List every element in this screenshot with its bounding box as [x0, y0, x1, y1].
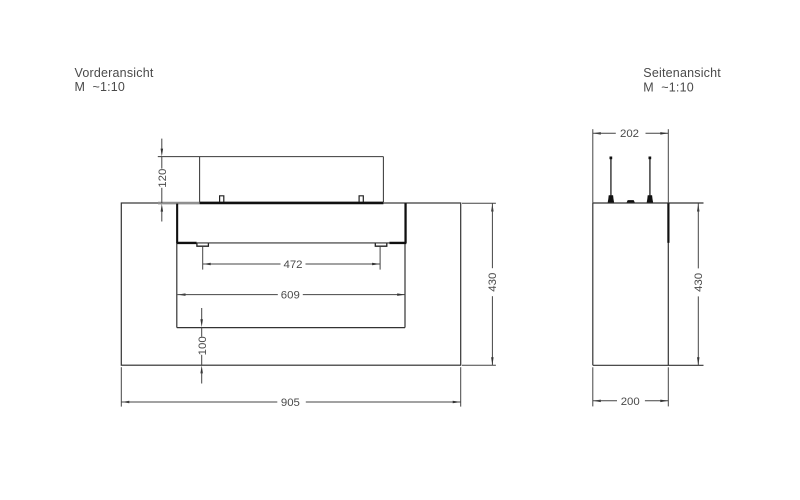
svg-text:202: 202 [620, 128, 639, 140]
svg-text:Seitenansicht: Seitenansicht [643, 66, 721, 80]
svg-text:430: 430 [487, 273, 499, 292]
svg-text:609: 609 [281, 290, 300, 302]
svg-text:120: 120 [157, 169, 169, 188]
svg-text:905: 905 [281, 397, 300, 409]
svg-text:100: 100 [197, 336, 209, 355]
svg-text:430: 430 [693, 273, 705, 292]
svg-text:M ~1:10: M ~1:10 [643, 81, 694, 95]
svg-text:472: 472 [283, 259, 302, 271]
svg-text:Vorderansicht: Vorderansicht [75, 66, 154, 80]
svg-text:200: 200 [621, 396, 640, 408]
svg-text:M ~1:10: M ~1:10 [75, 80, 126, 94]
